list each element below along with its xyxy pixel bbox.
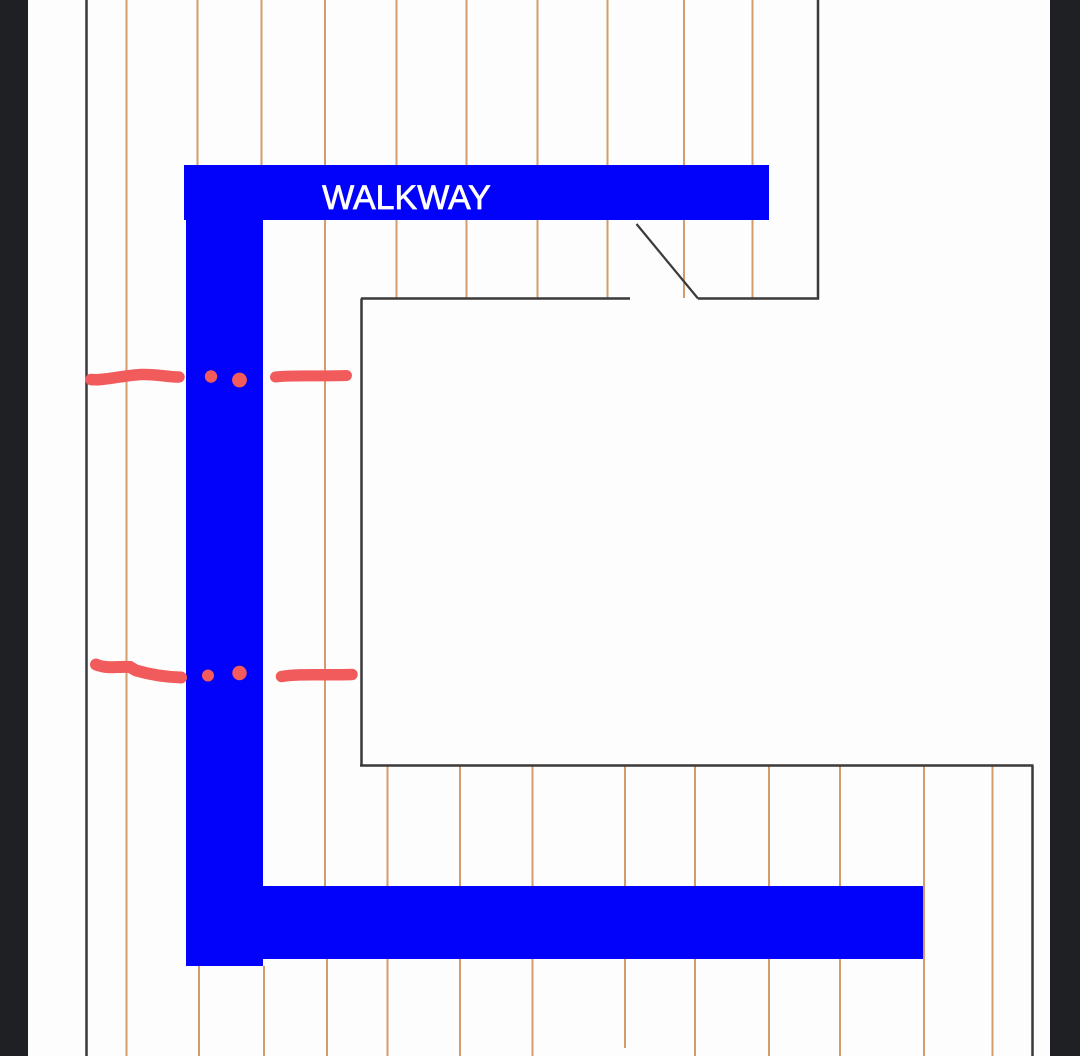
svg-text:WALKWAY: WALKWAY [322, 179, 491, 217]
